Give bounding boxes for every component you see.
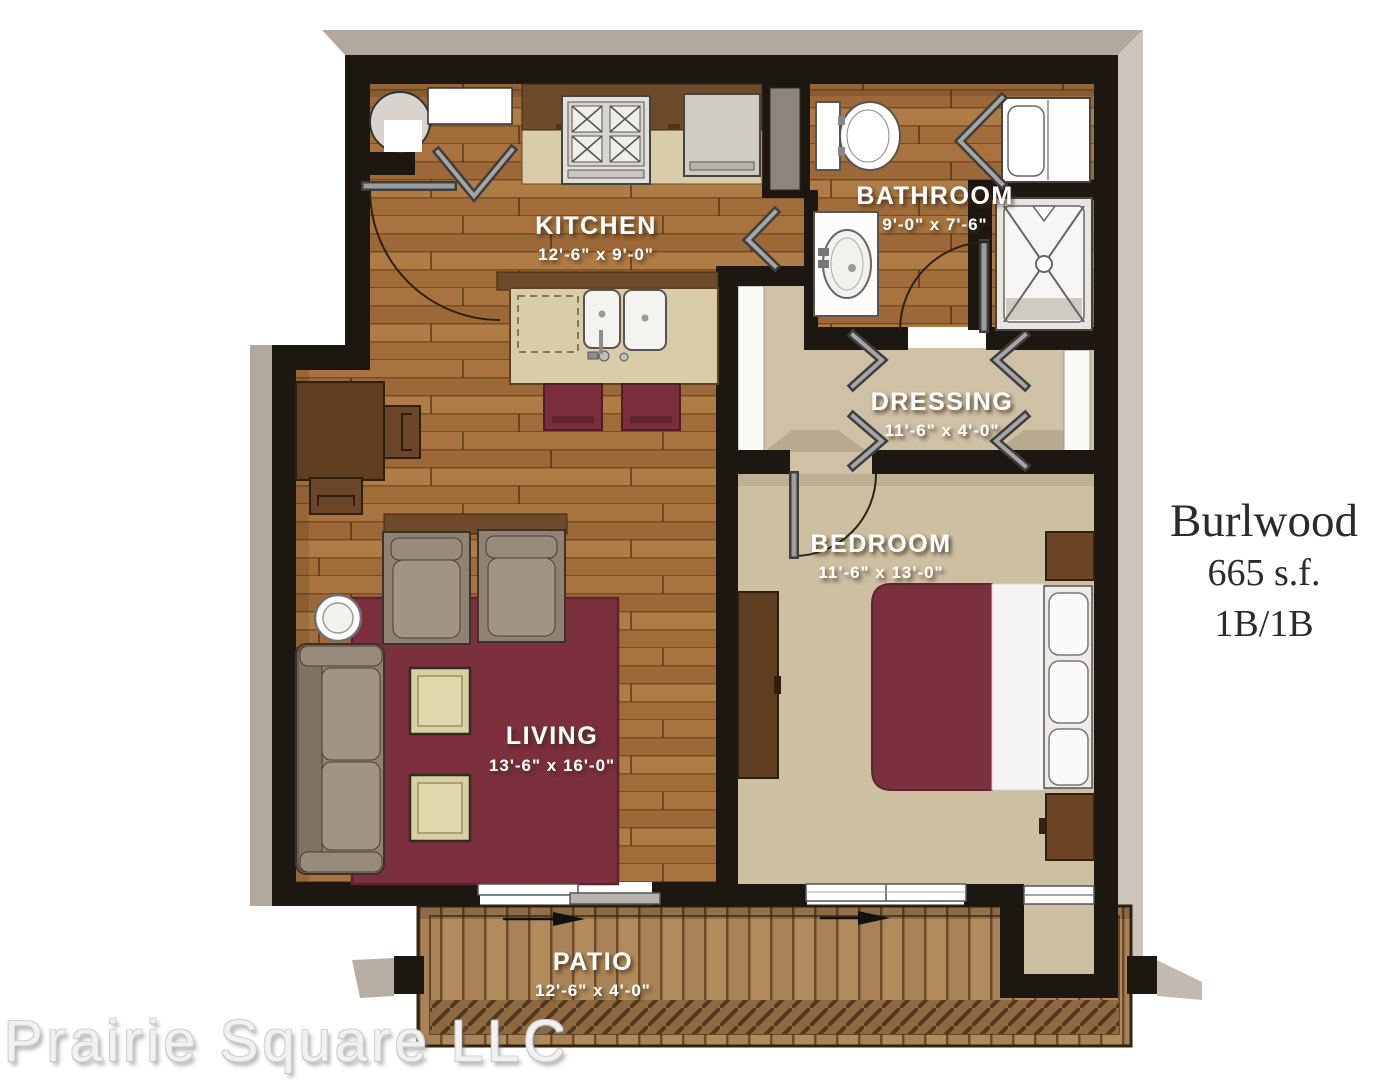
- floorplan-page: KITCHEN 12'-6" x 9'-0" BATHROOM 9'-0" x …: [0, 0, 1398, 1080]
- pillow: [1049, 593, 1088, 655]
- nightstand-bottom: [1046, 794, 1094, 860]
- living-dims: 13'-6" x 16'-0": [489, 756, 615, 775]
- deck-post-right: [1127, 956, 1157, 994]
- patio-dims: 12'-6" x 4'-0": [535, 981, 651, 1000]
- toilet: [816, 102, 900, 170]
- watermark: Prairie Square LLC: [4, 1008, 569, 1075]
- ottoman: [410, 668, 470, 734]
- bedroom-dresser: [738, 592, 778, 778]
- plan-area: 665 s.f.: [1126, 548, 1398, 599]
- pillow: [1049, 729, 1088, 785]
- bathroom-dims: 9'-0" x 7'-6": [882, 215, 987, 234]
- entry-cabinet: [428, 88, 512, 124]
- desk-chair: [384, 406, 420, 458]
- plan-name: Burlwood: [1126, 496, 1398, 548]
- stove: [562, 96, 650, 184]
- patio-label: PATIO: [553, 948, 633, 976]
- living-label: LIVING: [506, 722, 598, 750]
- shower: [996, 198, 1092, 330]
- bathroom-vanity: [814, 212, 878, 316]
- desk-chair: [310, 478, 362, 514]
- plan-layout: 1B/1B: [1126, 599, 1398, 650]
- desk: [296, 382, 384, 480]
- kitchen-dims: 12'-6" x 9'-0": [538, 245, 654, 264]
- bar-stool: [622, 384, 680, 430]
- bathroom-sink: [823, 230, 871, 298]
- bar-stool: [544, 384, 602, 430]
- nightstand-top: [1046, 532, 1094, 580]
- dressing-label: DRESSING: [871, 388, 1014, 416]
- bathroom-label: BATHROOM: [856, 182, 1013, 210]
- washer: [1002, 98, 1090, 182]
- title-block: Burlwood 665 s.f. 1B/1B: [1126, 496, 1398, 650]
- ottoman: [410, 775, 470, 841]
- patio-slider-panel: [570, 893, 660, 904]
- closet-shelf-right: [1064, 350, 1090, 454]
- armchair: [383, 532, 470, 644]
- bed-sheet: [992, 584, 1044, 790]
- kitchen-island: [497, 272, 718, 384]
- bedroom-label: BEDROOM: [810, 530, 951, 558]
- sofa: [296, 644, 384, 874]
- deck-post-left: [394, 956, 424, 994]
- closet-shelf-left: [738, 286, 764, 454]
- bed-comforter: [872, 584, 992, 790]
- kitchen-label: KITCHEN: [535, 212, 657, 240]
- armchair: [478, 530, 565, 642]
- refrigerator: [770, 88, 800, 190]
- dishwasher: [684, 94, 760, 176]
- pillow: [1049, 661, 1088, 723]
- bedroom-dims: 11'-6" x 13'-0": [818, 563, 943, 582]
- dressing-dims: 11'-6" x 4'-0": [885, 421, 1000, 440]
- patio-slider-panel: [478, 884, 578, 895]
- shower-drain: [1036, 256, 1052, 272]
